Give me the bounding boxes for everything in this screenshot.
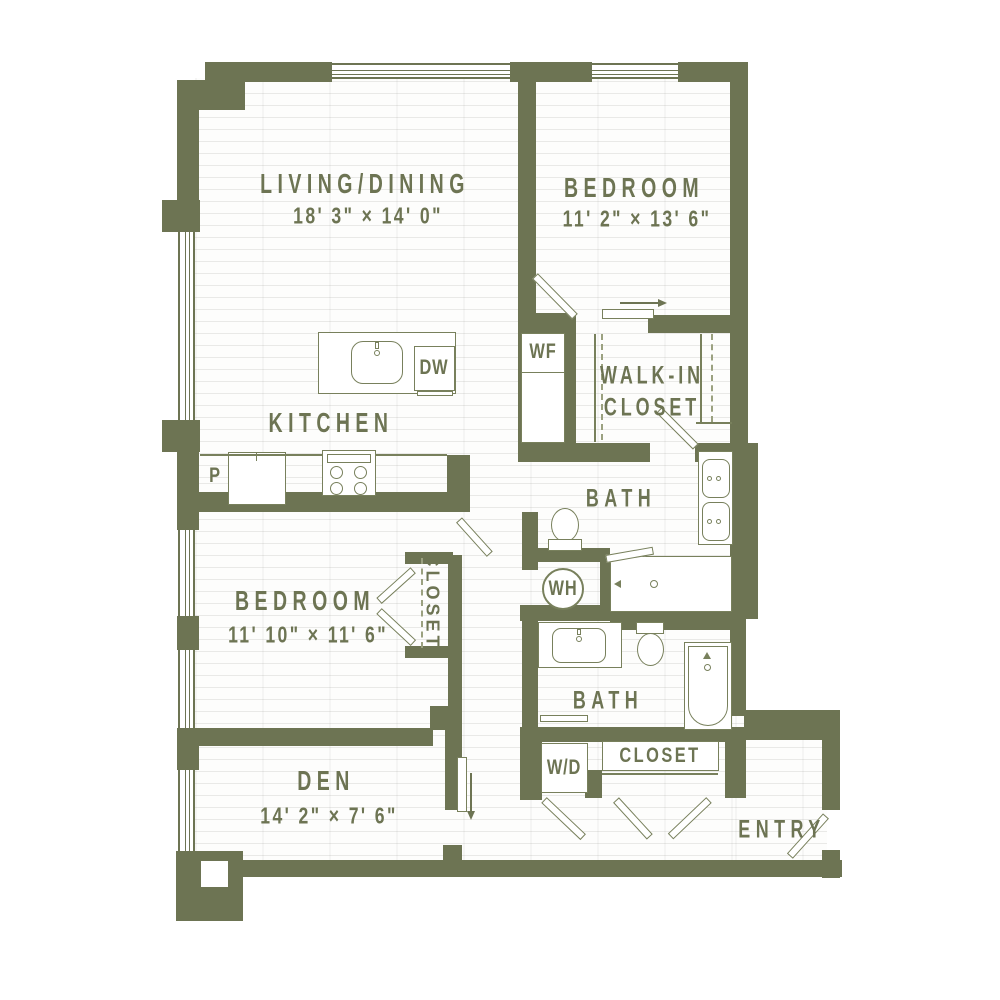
tub-spout-icon (703, 652, 711, 659)
wall (448, 555, 462, 710)
wall (177, 728, 199, 770)
slide-arrow-head (467, 811, 475, 820)
wall (443, 845, 462, 862)
sliding-door-walkin (602, 309, 654, 319)
room-label-den: DEN (297, 765, 355, 799)
room-dims-bedroom1: 11' 2" × 13' 6" (563, 205, 712, 232)
floor-plan: LIVING/DINING 18' 3" × 14' 0" BEDROOM 11… (0, 0, 1000, 1000)
window (590, 63, 680, 79)
bath-shelf (540, 715, 588, 722)
wall (518, 313, 576, 333)
slide-arrow-head (658, 299, 667, 307)
wall (518, 443, 650, 462)
wall (205, 62, 332, 82)
faucet-icon (716, 519, 721, 524)
faucet-icon (707, 476, 712, 481)
wine-fridge-label: WF (529, 340, 556, 364)
sliding-door-den (457, 757, 467, 812)
wall (725, 740, 746, 798)
wall (228, 860, 842, 877)
faucet-icon (374, 350, 380, 356)
tub-drain-icon (704, 664, 711, 671)
room-label-closet2: CLOSET (422, 553, 443, 650)
slide-arrow (470, 773, 472, 811)
closet-shelf-line (602, 773, 718, 775)
window (178, 230, 195, 422)
room-label-bedroom1: BEDROOM (564, 172, 704, 206)
water-heater-label: WH (549, 577, 578, 601)
wall-notch (201, 861, 228, 887)
toilet-icon (551, 508, 579, 542)
wall (822, 738, 840, 810)
room-label-entry-closet: CLOSET (619, 744, 700, 768)
wall (177, 450, 199, 530)
room-dims-bedroom2: 11' 10" × 11' 6" (228, 621, 388, 648)
wall (447, 455, 470, 512)
dishwasher-front (417, 391, 453, 396)
burner-icon (330, 482, 343, 495)
refrigerator-icon (228, 452, 286, 505)
faucet-icon (375, 342, 379, 349)
window (178, 768, 195, 852)
wall (198, 728, 433, 746)
closet-rod-line (711, 334, 713, 422)
stove-control-panel (327, 454, 371, 463)
room-label-entry: ENTRY (738, 813, 825, 845)
wall (177, 616, 199, 650)
slide-arrow (620, 302, 658, 304)
room-label-bath1: BATH (586, 482, 656, 514)
window (178, 528, 195, 618)
wall (162, 200, 200, 232)
wall (520, 742, 542, 800)
shower-head-icon (614, 580, 621, 588)
room-dims-living: 18' 3" × 14' 0" (293, 202, 443, 229)
faucet-icon (716, 476, 721, 481)
wall (162, 420, 200, 452)
dishwasher-label: DW (420, 356, 449, 380)
room-label-kitchen: KITCHEN (269, 407, 394, 441)
burner-icon (354, 482, 367, 495)
wall (730, 443, 758, 619)
wall (522, 512, 538, 570)
wall (648, 315, 732, 333)
faucet-icon (707, 519, 712, 524)
wall (730, 62, 748, 445)
room-label-bedroom2: BEDROOM (235, 585, 375, 619)
room-label-bath2: BATH (573, 684, 643, 716)
washer-dryer-label: W/D (547, 756, 581, 780)
burner-icon (330, 466, 343, 479)
burner-icon (354, 466, 367, 479)
faucet-icon (577, 629, 581, 635)
room-label-walkin-closet: WALK-IN CLOSET (600, 359, 704, 422)
shower-drain-icon (650, 580, 658, 588)
wall (430, 706, 462, 730)
shower-floor (610, 556, 732, 612)
toilet-icon (637, 633, 664, 666)
faucet-icon (576, 636, 582, 642)
wall (744, 710, 840, 740)
wall (610, 612, 734, 630)
wall (522, 615, 538, 740)
closet-shelf-line (594, 334, 596, 442)
pantry-label: P (209, 464, 221, 488)
window (178, 648, 195, 730)
wall (177, 80, 245, 110)
room-label-living: LIVING/DINING (260, 168, 470, 202)
room-dims-den: 14' 2" × 7' 6" (260, 802, 397, 829)
wall (177, 108, 199, 202)
window (330, 63, 512, 79)
toilet-tank (548, 539, 582, 551)
